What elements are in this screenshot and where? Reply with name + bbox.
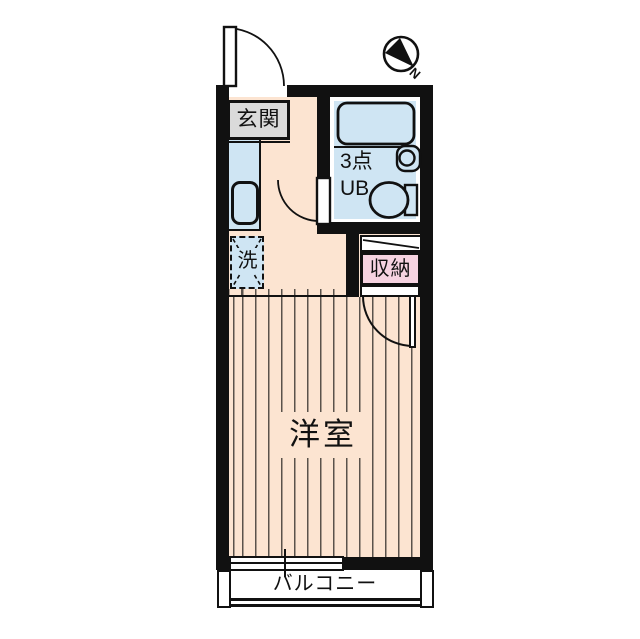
- bathroom-door-leaf: [317, 178, 330, 224]
- plan-overlay: [0, 0, 640, 639]
- bathtub: [338, 103, 414, 144]
- washbasin-bowl-icon: [400, 151, 415, 166]
- unit-bath-label-line1: 3点: [340, 148, 394, 175]
- entrance-door-leaf: [224, 27, 236, 86]
- closet-door-leaf: [410, 296, 415, 347]
- unit-bath-label: 3点 UB: [340, 148, 394, 202]
- bathroom-door-arc: [278, 180, 319, 221]
- western-room-label: 洋室: [277, 412, 369, 458]
- closet-door-arc: [363, 296, 413, 346]
- floor-plan: 洗 玄関 収納 バルコニー: [0, 0, 640, 639]
- unit-bath-label-line2: UB: [340, 175, 394, 202]
